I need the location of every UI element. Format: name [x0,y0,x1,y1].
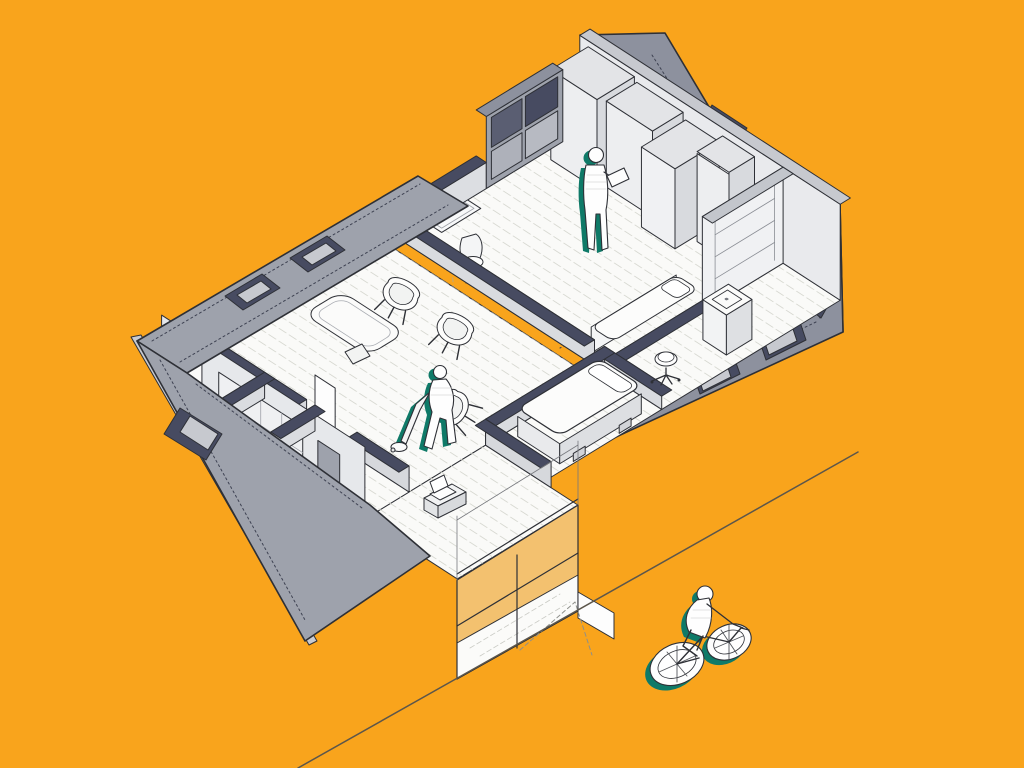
illustration-canvas [0,0,1024,768]
washbasin [703,284,752,355]
axonometric-scene [0,0,1024,768]
